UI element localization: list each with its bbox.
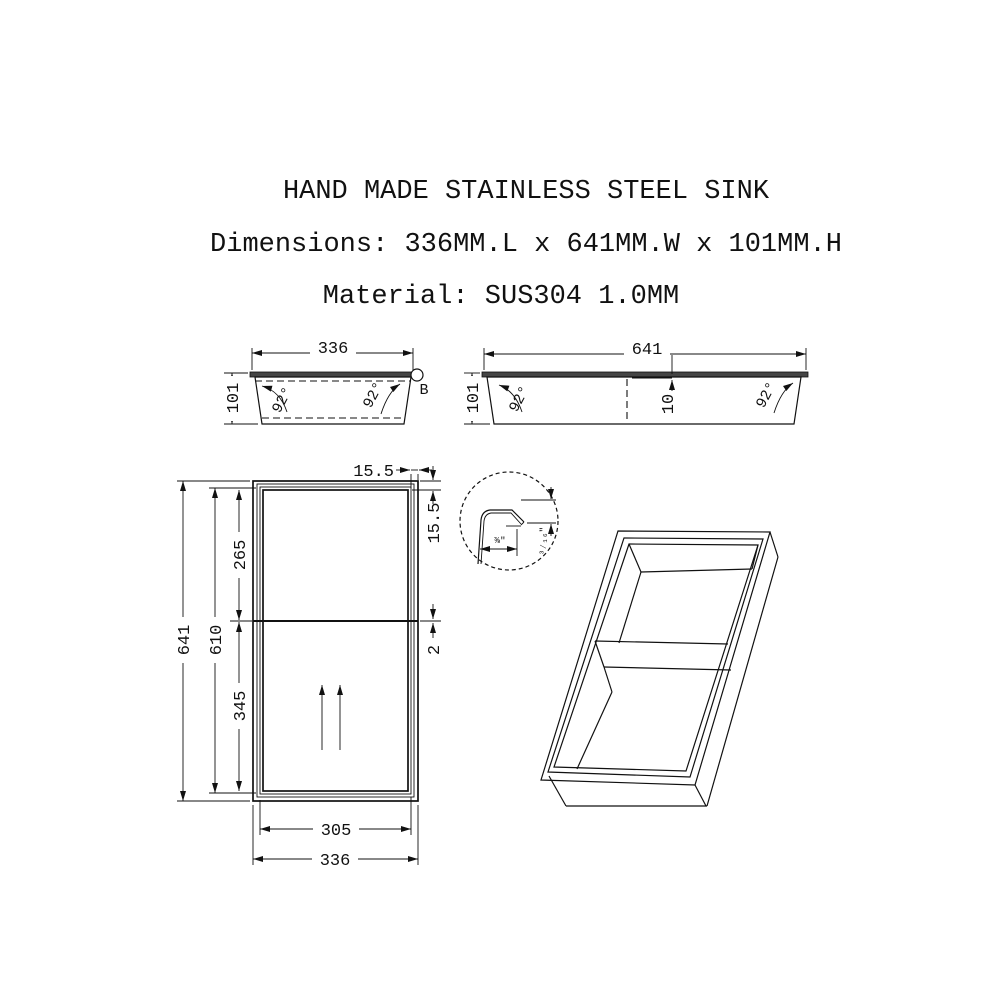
angle-label-left: 92° (506, 383, 534, 415)
flange-section (250, 372, 416, 377)
dim-flange-side-15-5: 15.5 (426, 503, 445, 544)
dim-basin-length-610: 610 (208, 625, 227, 656)
dim-height-101-left: 101 (225, 383, 244, 414)
iso-divider-far-edge (595, 641, 728, 644)
dim-bowl-top-265: 265 (232, 540, 251, 571)
dim-divider-thickness-2: 2 (426, 645, 445, 655)
side-view-width: 336 101 92° 92° B (224, 340, 429, 424)
title-block: HAND MADE STAINLESS STEEL SINK Dimension… (210, 177, 842, 312)
dim-lip-width: ⅜″ (494, 535, 505, 546)
detail-b-marker-circle (411, 369, 423, 381)
detail-view-b: ³⁄₁₆″ ⅜″ (460, 472, 558, 570)
flange-outline (253, 481, 418, 801)
rim-outline (257, 484, 414, 797)
dim-overall-width-336: 336 (320, 852, 351, 871)
dim-width-336: 336 (318, 340, 349, 359)
dim-divider-offset-10: 10 (660, 394, 679, 414)
dim-basin-width-305: 305 (321, 822, 352, 841)
dim-length-641: 641 (632, 341, 663, 360)
drawing-title: HAND MADE STAINLESS STEEL SINK (283, 177, 770, 207)
sink-drawing-svg: HAND MADE STAINLESS STEEL SINK Dimension… (0, 0, 1000, 1000)
rim-inner-outline (260, 487, 411, 794)
plan-view: 641 610 265 345 15.5 15.5 2 (175, 463, 445, 871)
dim-bowl-bottom-345: 345 (232, 691, 251, 722)
drawing-material-line: Material: SUS304 1.0MM (323, 282, 679, 312)
drawing-dimensions-line: Dimensions: 336MM.L x 641MM.W x 101MM.H (210, 230, 842, 260)
angle-label-left: 92° (269, 384, 297, 416)
dim-flange-top-15-5: 15.5 (353, 463, 394, 482)
isometric-view (541, 531, 778, 806)
side-view-length: 641 10 101 92° 92° (464, 341, 808, 424)
basin-outline (263, 490, 408, 791)
dim-lip-drop: ³⁄₁₆″ (538, 527, 549, 556)
detail-b-marker-label: B (419, 382, 428, 399)
flange-section (482, 372, 808, 377)
iso-flange-inner (548, 538, 763, 777)
iso-divider-near-edge (604, 667, 731, 670)
dim-height-101-right: 101 (465, 383, 484, 414)
technical-drawing-sheet: HAND MADE STAINLESS STEEL SINK Dimension… (0, 0, 1000, 1000)
dim-overall-length-641: 641 (176, 625, 195, 656)
